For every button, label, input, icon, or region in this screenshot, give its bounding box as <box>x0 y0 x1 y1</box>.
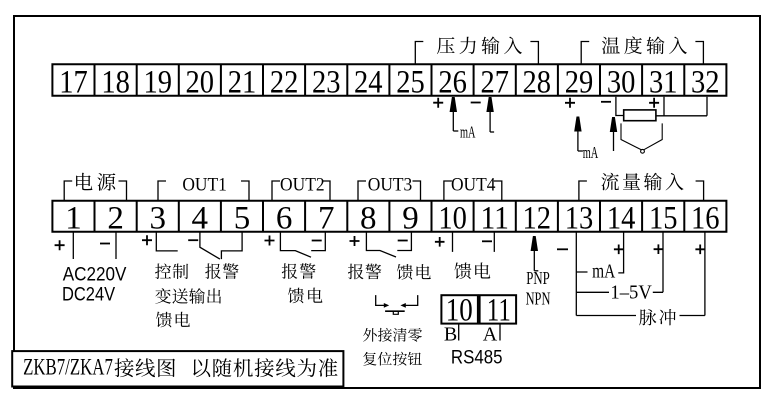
svg-text:22: 22 <box>270 64 299 100</box>
svg-text:6: 6 <box>276 201 293 237</box>
svg-text:14: 14 <box>607 201 636 237</box>
svg-text:OUT3: OUT3 <box>368 175 413 196</box>
svg-text:16: 16 <box>691 201 720 237</box>
svg-text:32: 32 <box>691 64 720 100</box>
svg-text:PNP: PNP <box>526 268 550 288</box>
svg-text:12: 12 <box>523 201 552 237</box>
svg-text:3: 3 <box>149 201 166 237</box>
svg-text:10: 10 <box>438 201 467 237</box>
svg-text:13: 13 <box>565 201 594 237</box>
svg-text:30: 30 <box>607 64 636 100</box>
svg-text:28: 28 <box>523 64 552 100</box>
svg-text:19: 19 <box>143 64 172 100</box>
svg-text:1–5V: 1–5V <box>610 282 652 304</box>
svg-text:7: 7 <box>318 201 335 237</box>
svg-text:24: 24 <box>354 64 383 100</box>
svg-text:OUT2: OUT2 <box>280 175 325 196</box>
svg-text:RS485: RS485 <box>451 348 503 369</box>
svg-text:31: 31 <box>649 64 678 100</box>
svg-text:17: 17 <box>59 64 88 100</box>
svg-text:A: A <box>483 323 498 345</box>
svg-text:1: 1 <box>65 201 82 237</box>
svg-text:NPN: NPN <box>526 289 551 309</box>
svg-text:23: 23 <box>312 64 341 100</box>
svg-text:mA: mA <box>583 143 599 162</box>
svg-text:21: 21 <box>228 64 257 100</box>
svg-text:25: 25 <box>396 64 425 100</box>
svg-text:27: 27 <box>480 64 509 100</box>
svg-text:18: 18 <box>101 64 130 100</box>
svg-text:AC220V: AC220V <box>63 265 127 286</box>
svg-text:8: 8 <box>360 201 377 237</box>
svg-text:mA: mA <box>592 260 616 282</box>
svg-text:29: 29 <box>565 64 594 100</box>
svg-text:26: 26 <box>438 64 467 100</box>
svg-text:ZKB7/ZKA7: ZKB7/ZKA7 <box>23 355 113 380</box>
svg-text:DC24V: DC24V <box>62 284 115 305</box>
svg-text:5: 5 <box>234 201 251 237</box>
svg-text:2: 2 <box>107 201 124 237</box>
svg-text:4: 4 <box>192 201 209 237</box>
svg-text:9: 9 <box>402 201 419 237</box>
svg-text:mA: mA <box>460 122 476 141</box>
svg-text:OUT4: OUT4 <box>451 175 496 196</box>
svg-text:OUT1: OUT1 <box>182 175 227 196</box>
svg-text:20: 20 <box>186 64 215 100</box>
svg-text:15: 15 <box>649 201 678 237</box>
svg-text:11: 11 <box>480 201 509 237</box>
svg-text:B: B <box>444 323 457 345</box>
